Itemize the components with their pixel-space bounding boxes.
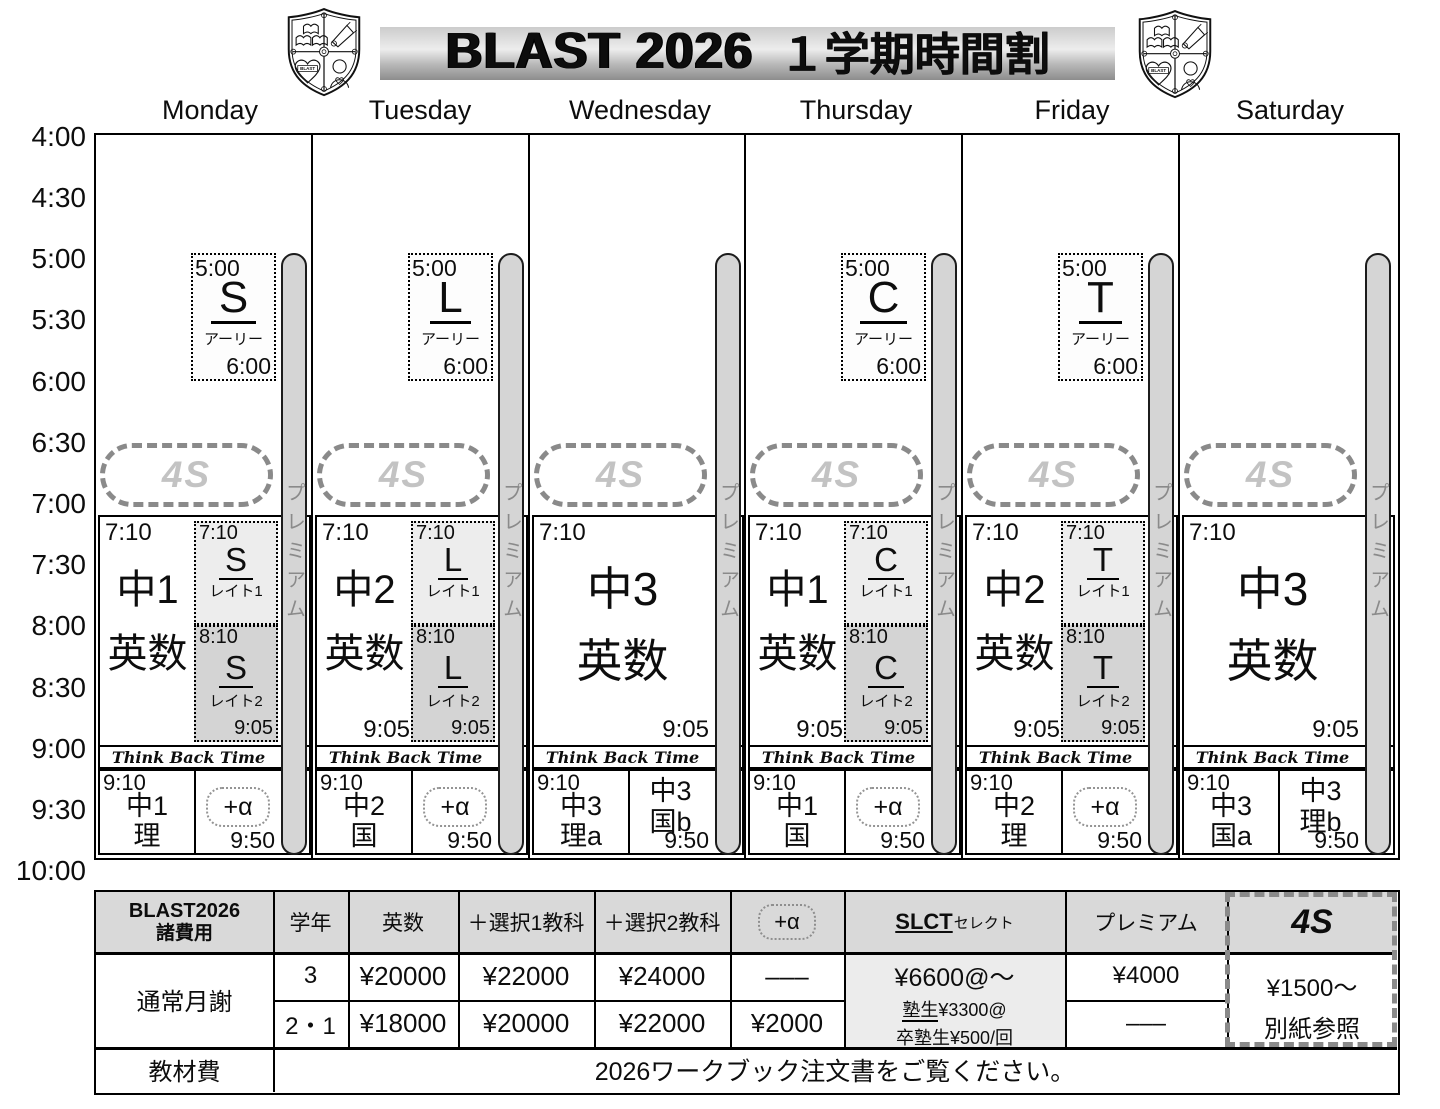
title-brand: BLAST 2026 bbox=[446, 21, 754, 80]
late2-class-box: 8:10 T レイト2 9:05 bbox=[1061, 625, 1145, 742]
fees-header-premium: プレミアム bbox=[1065, 892, 1227, 952]
fees-table: BLAST2026 諸費用 学年 英数 ＋選択1教科 ＋選択2教科 +α SLC… bbox=[94, 890, 1400, 1095]
evening-row: 9:10 中1 理 +α 9:50 bbox=[98, 769, 311, 855]
course-type: レイト2 bbox=[196, 690, 276, 711]
evening-row: 9:10 中3 国a 中3 理b 9:50 bbox=[1182, 769, 1395, 855]
fees-cell: ¥22000 bbox=[458, 952, 594, 1000]
class-grade: 中3 bbox=[534, 792, 628, 820]
class-start-time: 7:10 bbox=[105, 520, 152, 545]
fees-cell: ¥20000 bbox=[348, 952, 458, 1000]
course-letter: S bbox=[193, 275, 274, 324]
plus-alpha-slot: +α bbox=[423, 787, 487, 827]
day-header-thursday: Thursday bbox=[756, 95, 956, 125]
class-end-time: 9:50 bbox=[967, 828, 1142, 852]
time-tick: 7:30 bbox=[0, 549, 86, 581]
fees-materials-label: 教材費 bbox=[96, 1047, 273, 1092]
class-grade: 中1 bbox=[100, 792, 194, 820]
fees-monthly-label: 通常月謝 bbox=[96, 952, 273, 1047]
class-end-time: 9:05 bbox=[1101, 718, 1140, 739]
premium-bar: プレミアム bbox=[715, 253, 741, 855]
course-letter: S bbox=[196, 543, 276, 580]
course-type: レイト2 bbox=[1063, 690, 1143, 711]
fees-header-sel1: ＋選択1教科 bbox=[458, 892, 594, 952]
class-grade: 中3 bbox=[1280, 777, 1361, 805]
class-grade: 中2 bbox=[967, 569, 1062, 611]
svg-text:BLAST: BLAST bbox=[1151, 68, 1166, 73]
day-column-tuesday: 5:00 L アーリー 6:00 4S 7:10 中2 英数 9:05 7:10… bbox=[313, 135, 530, 858]
class-grade: 中2 bbox=[317, 792, 411, 820]
class-subject: 英数 bbox=[967, 633, 1062, 675]
premium-bar: プレミアム bbox=[1148, 253, 1174, 855]
class-grade: 中1 bbox=[750, 792, 844, 820]
time-tick: 4:30 bbox=[0, 182, 86, 214]
fees-cell: ¥20000 bbox=[458, 1000, 594, 1047]
course-letter: L bbox=[410, 275, 491, 324]
class-end-time: 9:50 bbox=[100, 828, 275, 852]
class-end-time: 6:00 bbox=[1093, 354, 1138, 378]
time-tick: 5:30 bbox=[0, 304, 86, 336]
think-back-time-band: Think Back Time bbox=[315, 745, 528, 769]
time-tick: 8:00 bbox=[0, 610, 86, 642]
course-type: レイト2 bbox=[413, 690, 493, 711]
day-column-thursday: 5:00 C アーリー 6:00 4S 7:10 中1 英数 9:05 7:10… bbox=[746, 135, 963, 858]
class-grade: 中1 bbox=[100, 569, 195, 611]
late1-class-box: 7:10 S レイト1 bbox=[194, 521, 278, 625]
premium-bar: プレミアム bbox=[498, 253, 524, 855]
fees-header-slct: SLCTセレクト bbox=[844, 892, 1065, 952]
fees-cell: ––– bbox=[1065, 1000, 1227, 1047]
fees-cell: 3 bbox=[273, 952, 348, 1000]
class-grade: 中3 bbox=[630, 777, 711, 805]
course-type: アーリー bbox=[410, 328, 491, 349]
class-end-time: 9:05 bbox=[234, 718, 273, 739]
early-class-box: 5:00 S アーリー 6:00 bbox=[191, 253, 276, 381]
course-type: レイト1 bbox=[196, 580, 276, 601]
fees-cell: ¥4000 bbox=[1065, 952, 1227, 1000]
class-end-time: 9:50 bbox=[750, 828, 925, 852]
class-grade: 中3 bbox=[534, 565, 711, 613]
class-grade: 中1 bbox=[750, 569, 845, 611]
premium-bar: プレミアム bbox=[1365, 253, 1391, 855]
time-tick: 5:00 bbox=[0, 243, 86, 275]
plus-alpha-slot: +α bbox=[856, 787, 920, 827]
class-subject: 英数 bbox=[1184, 637, 1361, 685]
blast-crest-icon: BLAST bbox=[1134, 6, 1216, 103]
4s-slot: 4S bbox=[967, 443, 1140, 507]
course-letter: T bbox=[1063, 543, 1143, 580]
time-tick: 10:00 bbox=[0, 855, 86, 887]
course-letter: T bbox=[1063, 651, 1143, 688]
day-header-monday: Monday bbox=[110, 95, 310, 125]
class-end-time: 9:05 bbox=[967, 717, 1060, 742]
course-type: レイト1 bbox=[846, 580, 926, 601]
blast-timetable-poster: { "header": { "title_en": "BLAST 2026", … bbox=[0, 0, 1440, 1109]
evening-row: 9:10 中2 国 +α 9:50 bbox=[315, 769, 528, 855]
late2-class-box: 8:10 S レイト2 9:05 bbox=[194, 625, 278, 742]
class-subject: 英数 bbox=[534, 637, 711, 685]
blast-crest-icon: BLAST bbox=[283, 4, 365, 101]
class-start-time: 8:10 bbox=[849, 627, 888, 648]
class-start-time: 7:10 bbox=[322, 520, 369, 545]
class-grade: 中2 bbox=[317, 569, 412, 611]
day-header-tuesday: Tuesday bbox=[320, 95, 520, 125]
page-title: BLAST 2026 １学期時間割 bbox=[380, 18, 1115, 82]
title-semester: １学期時間割 bbox=[779, 18, 1049, 83]
course-type: アーリー bbox=[1060, 328, 1141, 349]
course-letter: C bbox=[843, 275, 924, 324]
evening-row: 9:10 中1 国 +α 9:50 bbox=[748, 769, 961, 855]
fees-cell: ¥2000 bbox=[730, 1000, 844, 1047]
plus-alpha-slot: +α bbox=[1073, 787, 1137, 827]
course-letter: L bbox=[413, 651, 493, 688]
class-grade: 中2 bbox=[967, 792, 1061, 820]
fees-cell: ¥22000 bbox=[594, 1000, 730, 1047]
day-column-monday: 5:00 S アーリー 6:00 4S 7:10 中1 英数 7:10 S レイ… bbox=[96, 135, 313, 858]
course-type: レイト1 bbox=[1063, 580, 1143, 601]
class-end-time: 9:05 bbox=[1184, 717, 1359, 742]
fees-cell: ––– bbox=[730, 952, 844, 1000]
class-end-time: 9:50 bbox=[317, 828, 492, 852]
class-subject: 英数 bbox=[100, 633, 195, 675]
class-start-time: 8:10 bbox=[199, 627, 238, 648]
early-class-box: 5:00 L アーリー 6:00 bbox=[408, 253, 493, 381]
fees-header-sel2: ＋選択2教科 bbox=[594, 892, 730, 952]
think-back-time-band: Think Back Time bbox=[965, 745, 1178, 769]
class-end-time: 9:05 bbox=[451, 718, 490, 739]
4s-slot: 4S bbox=[1184, 443, 1357, 507]
premium-bar: プレミアム bbox=[281, 253, 307, 855]
fees-corner-header: BLAST2026 諸費用 bbox=[96, 892, 273, 952]
time-tick: 8:30 bbox=[0, 672, 86, 704]
time-tick: 9:00 bbox=[0, 733, 86, 765]
4s-slot: 4S bbox=[534, 443, 707, 507]
time-tick: 9:30 bbox=[0, 794, 86, 826]
course-type: アーリー bbox=[193, 328, 274, 349]
4s-slot: 4S bbox=[100, 443, 273, 507]
4s-slot: 4S bbox=[750, 443, 923, 507]
class-end-time: 6:00 bbox=[226, 354, 271, 378]
4s-slot: 4S bbox=[317, 443, 490, 507]
premium-bar: プレミアム bbox=[931, 253, 957, 855]
course-type: レイト2 bbox=[846, 690, 926, 711]
time-tick: 4:00 bbox=[0, 121, 86, 153]
think-back-time-band: Think Back Time bbox=[532, 745, 744, 769]
course-type: レイト1 bbox=[413, 580, 493, 601]
course-letter: T bbox=[1060, 275, 1141, 324]
course-letter: C bbox=[846, 651, 926, 688]
fees-header-grade: 学年 bbox=[273, 892, 348, 952]
think-back-time-band: Think Back Time bbox=[1182, 745, 1395, 769]
late1-class-box: 7:10 T レイト1 bbox=[1061, 521, 1145, 625]
day-header-friday: Friday bbox=[972, 95, 1172, 125]
class-end-time: 9:05 bbox=[317, 717, 410, 742]
fees-cell: ¥24000 bbox=[594, 952, 730, 1000]
class-end-time: 9:05 bbox=[884, 718, 923, 739]
class-end-time: 9:05 bbox=[750, 717, 843, 742]
think-back-time-band: Think Back Time bbox=[98, 745, 311, 769]
late1-class-box: 7:10 C レイト1 bbox=[844, 521, 928, 625]
class-end-time: 6:00 bbox=[876, 354, 921, 378]
class-start-time: 8:10 bbox=[416, 627, 455, 648]
class-end-time: 9:05 bbox=[534, 717, 709, 742]
class-end-time: 9:50 bbox=[534, 828, 709, 852]
fees-cell: 2・1 bbox=[273, 1000, 348, 1047]
day-column-friday: 5:00 T アーリー 6:00 4S 7:10 中2 英数 9:05 7:10… bbox=[963, 135, 1180, 858]
evening-row: 9:10 中2 理 +α 9:50 bbox=[965, 769, 1178, 855]
day-column-wednesday: 4S 7:10 中3 英数 9:05 Think Back Time 9:10 … bbox=[530, 135, 746, 858]
late2-class-box: 8:10 L レイト2 9:05 bbox=[411, 625, 495, 742]
class-end-time: 9:50 bbox=[1184, 828, 1359, 852]
time-tick: 7:00 bbox=[0, 488, 86, 520]
early-class-box: 5:00 T アーリー 6:00 bbox=[1058, 253, 1143, 381]
late1-class-box: 7:10 L レイト1 bbox=[411, 521, 495, 625]
main-class-block: 7:10 中3 英数 9:05 bbox=[532, 515, 744, 747]
course-letter: C bbox=[846, 543, 926, 580]
time-tick: 6:00 bbox=[0, 366, 86, 398]
fees-header-plus-alpha: +α bbox=[730, 892, 844, 952]
course-letter: S bbox=[196, 651, 276, 688]
day-header-wednesday: Wednesday bbox=[540, 95, 740, 125]
fees-materials-note: 2026ワークブック注文書をご覧ください。 bbox=[273, 1047, 1397, 1092]
fees-slct-cell: ¥6600@〜 塾生¥3300@ 卒塾生¥500/回 bbox=[844, 952, 1065, 1047]
fees-header-eisu: 英数 bbox=[348, 892, 458, 952]
class-start-time: 7:10 bbox=[972, 520, 1019, 545]
class-start-time: 7:10 bbox=[755, 520, 802, 545]
day-header-saturday: Saturday bbox=[1190, 95, 1390, 125]
class-start-time: 8:10 bbox=[1066, 627, 1105, 648]
course-type: アーリー bbox=[843, 328, 924, 349]
early-class-box: 5:00 C アーリー 6:00 bbox=[841, 253, 926, 381]
plus-alpha-slot: +α bbox=[206, 787, 270, 827]
think-back-time-band: Think Back Time bbox=[748, 745, 961, 769]
late2-class-box: 8:10 C レイト2 9:05 bbox=[844, 625, 928, 742]
time-tick: 6:30 bbox=[0, 427, 86, 459]
4s-column-outline bbox=[1225, 892, 1397, 1047]
class-grade: 中3 bbox=[1184, 792, 1278, 820]
class-subject: 英数 bbox=[750, 633, 845, 675]
class-subject: 英数 bbox=[317, 633, 412, 675]
course-letter: L bbox=[413, 543, 493, 580]
class-grade: 中3 bbox=[1184, 565, 1361, 613]
evening-row: 9:10 中3 理a 中3 国b 9:50 bbox=[532, 769, 744, 855]
svg-text:BLAST: BLAST bbox=[300, 66, 315, 71]
fees-cell: ¥18000 bbox=[348, 1000, 458, 1047]
class-end-time: 6:00 bbox=[443, 354, 488, 378]
day-column-saturday: 4S 7:10 中3 英数 9:05 Think Back Time 9:10 … bbox=[1180, 135, 1397, 858]
class-start-time: 7:10 bbox=[539, 520, 586, 545]
timetable-grid: 5:00 S アーリー 6:00 4S 7:10 中1 英数 7:10 S レイ… bbox=[94, 133, 1400, 860]
class-start-time: 7:10 bbox=[1189, 520, 1236, 545]
